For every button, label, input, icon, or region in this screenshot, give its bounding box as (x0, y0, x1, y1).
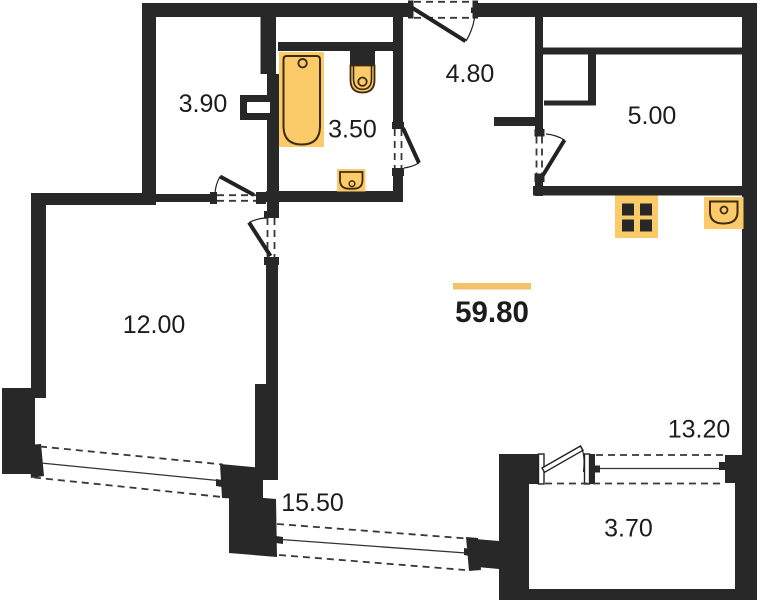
svg-text:4.80: 4.80 (446, 60, 495, 88)
svg-text:3.50: 3.50 (328, 116, 377, 144)
svg-text:15.50: 15.50 (281, 489, 344, 517)
svg-text:12.00: 12.00 (123, 311, 186, 339)
svg-text:3.90: 3.90 (179, 90, 228, 118)
svg-text:13.20: 13.20 (668, 416, 731, 444)
svg-text:3.70: 3.70 (604, 515, 653, 543)
svg-text:5.00: 5.00 (628, 102, 677, 130)
svg-text:59.80: 59.80 (455, 296, 529, 329)
